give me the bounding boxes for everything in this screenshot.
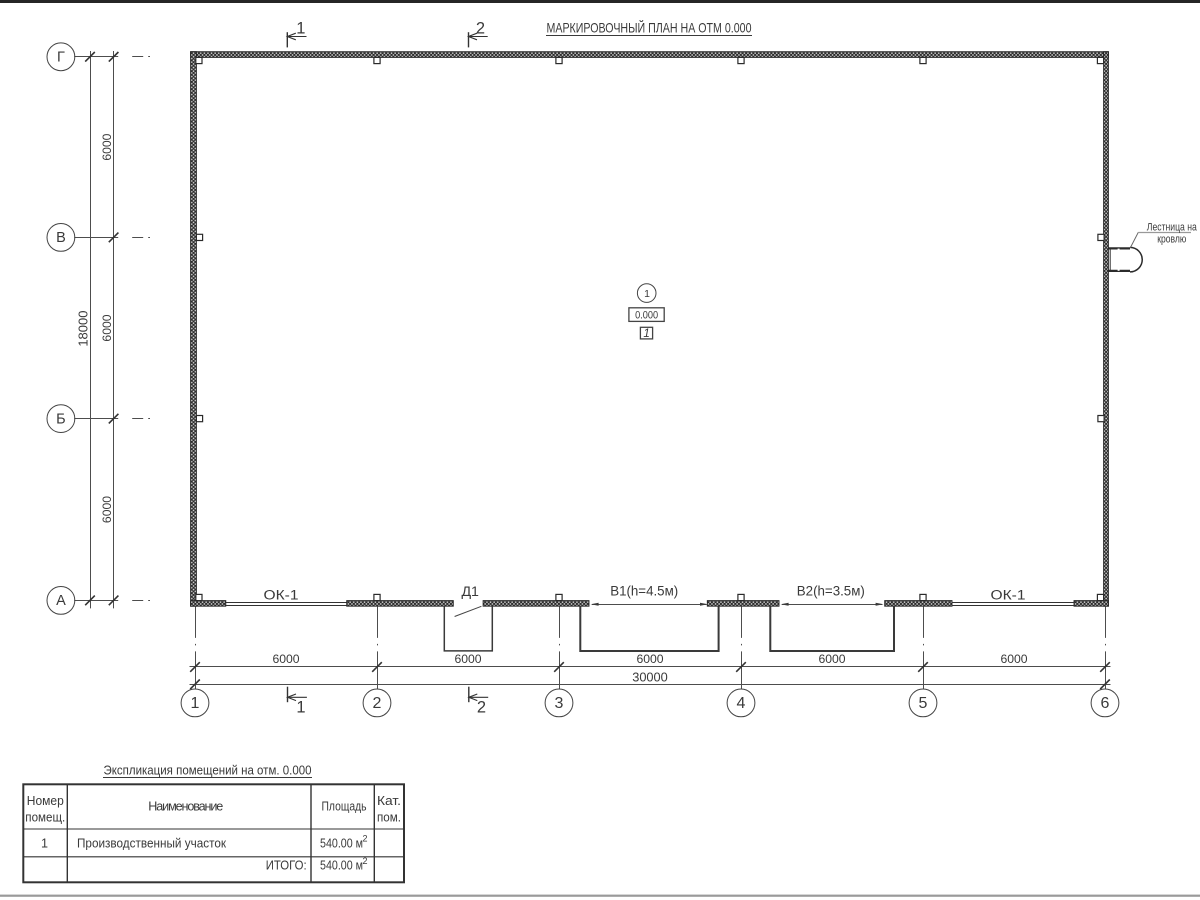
svg-text:пом.: пом. <box>377 811 401 825</box>
svg-text:Кат.: Кат. <box>377 794 401 808</box>
svg-text:Наименование: Наименование <box>148 800 223 814</box>
svg-text:ОК-1: ОК-1 <box>991 587 1026 603</box>
svg-text:кровлю: кровлю <box>1157 234 1186 246</box>
svg-text:6000: 6000 <box>100 133 114 160</box>
svg-text:2: 2 <box>477 699 486 717</box>
svg-text:Производственный участок: Производственный участок <box>77 836 226 850</box>
svg-text:6: 6 <box>1101 695 1110 712</box>
svg-text:1: 1 <box>296 20 305 38</box>
svg-text:1: 1 <box>41 836 48 850</box>
svg-text:3: 3 <box>555 695 564 712</box>
svg-text:Д1: Д1 <box>461 584 479 600</box>
svg-text:0.000: 0.000 <box>635 309 658 321</box>
svg-text:В: В <box>56 230 66 246</box>
svg-text:18000: 18000 <box>75 311 90 347</box>
svg-text:6000: 6000 <box>636 652 663 666</box>
svg-text:Лестница на: Лестница на <box>1147 221 1197 233</box>
svg-text:6000: 6000 <box>818 652 845 666</box>
svg-text:540.00 м: 540.00 м <box>320 859 363 873</box>
svg-text:1: 1 <box>643 327 649 340</box>
svg-text:2: 2 <box>363 834 368 844</box>
svg-text:540.00 м: 540.00 м <box>320 836 363 850</box>
svg-text:1: 1 <box>644 288 650 300</box>
svg-text:30000: 30000 <box>632 669 668 684</box>
svg-text:Площадь: Площадь <box>322 800 367 814</box>
svg-text:2: 2 <box>476 20 485 38</box>
svg-text:6000: 6000 <box>454 652 481 666</box>
svg-text:4: 4 <box>737 695 746 712</box>
svg-text:Г: Г <box>57 50 65 66</box>
svg-text:В2(h=3.5м): В2(h=3.5м) <box>797 583 865 599</box>
svg-text:Номер: Номер <box>27 794 64 808</box>
svg-text:6000: 6000 <box>100 496 114 523</box>
svg-text:ОК-1: ОК-1 <box>264 587 299 603</box>
svg-text:А: А <box>56 593 66 609</box>
svg-text:1: 1 <box>296 699 305 717</box>
svg-text:МАРКИРОВОЧНЫЙ ПЛАН НА ОТМ 0.00: МАРКИРОВОЧНЫЙ ПЛАН НА ОТМ 0.000 <box>547 21 752 36</box>
svg-text:ИТОГО:: ИТОГО: <box>266 859 307 873</box>
svg-text:Б: Б <box>56 411 66 427</box>
svg-text:1: 1 <box>191 695 200 712</box>
svg-text:2: 2 <box>363 856 368 866</box>
svg-text:5: 5 <box>919 695 928 712</box>
svg-text:6000: 6000 <box>100 314 114 341</box>
svg-text:6000: 6000 <box>272 652 299 666</box>
svg-text:6000: 6000 <box>1000 652 1027 666</box>
svg-text:помещ.: помещ. <box>25 811 65 825</box>
svg-text:В1(h=4.5м): В1(h=4.5м) <box>610 583 678 599</box>
svg-text:Экспликация помещений на отм.: Экспликация помещений на отм. 0.000 <box>104 762 312 777</box>
svg-text:2: 2 <box>373 695 382 712</box>
